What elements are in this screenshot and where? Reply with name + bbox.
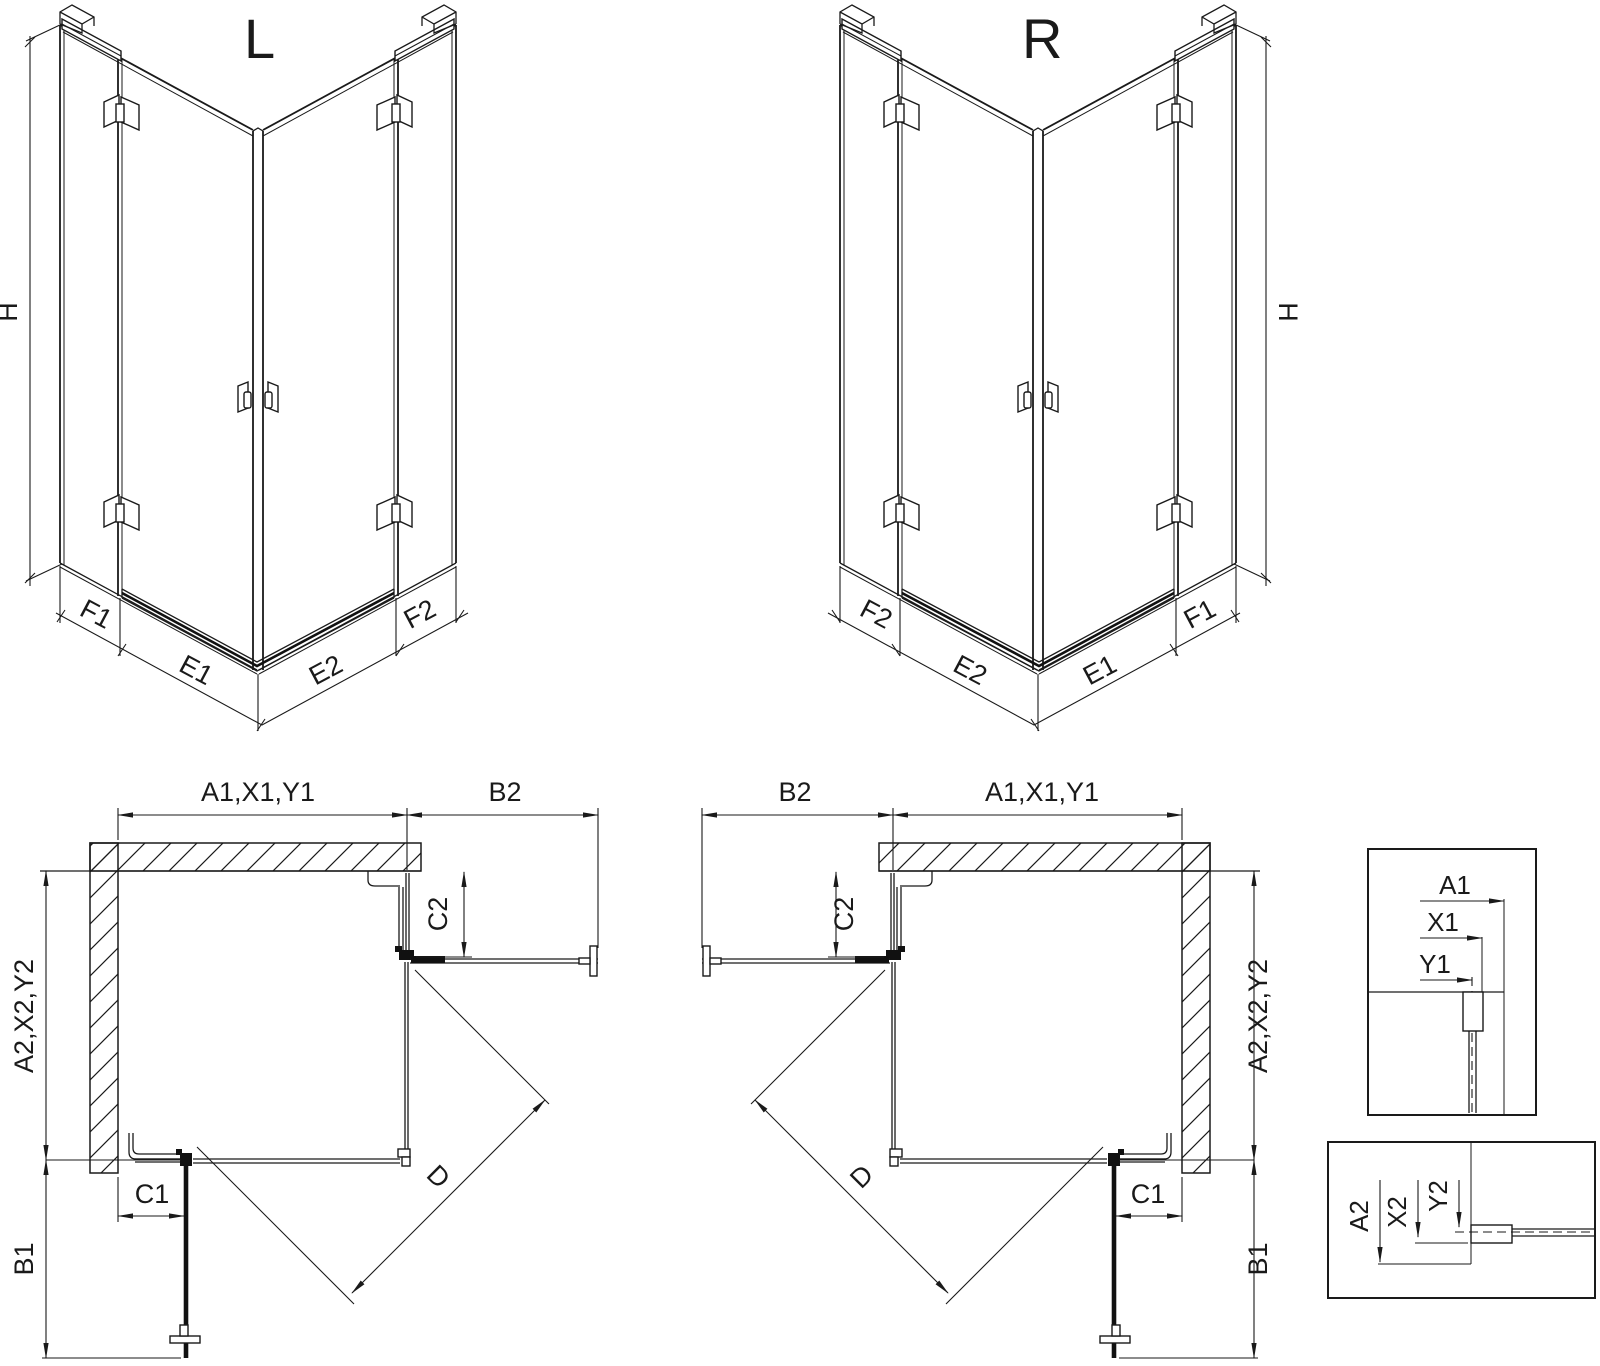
detail-top-ref-lines: [1482, 899, 1504, 1115]
iso-left-f1-label: F1: [75, 593, 117, 634]
plan-right-b2-label: B2: [778, 777, 811, 807]
detail-top-y1-label: Y1: [1419, 949, 1451, 979]
plan-right-top-wall: [879, 843, 1210, 871]
plan-view-left: A1,X1,Y1 B2 C2 A2,X2,Y2 C1 B1 D: [9, 777, 598, 1358]
plan-left-b2-label: B2: [488, 777, 521, 807]
plan-left-linework: [40, 808, 598, 1358]
plan-left-d-label: D: [421, 1159, 456, 1194]
plan-right-linework: [702, 808, 1260, 1358]
plan-left-side-wall: [90, 843, 118, 1173]
iso-right-title: R: [1022, 7, 1062, 70]
plan-right-a1-label: A1,X1,Y1: [985, 777, 1099, 807]
plan-right-b1-label: B1: [1243, 1242, 1273, 1275]
plan-left-a1-label: A1,X1,Y1: [201, 777, 315, 807]
iso-left-e2-label: E2: [304, 649, 347, 691]
iso-right-e2-label: E2: [949, 649, 992, 691]
iso-view-right: R H F2 E2 E1 F1: [828, 5, 1303, 731]
plan-right-c2-label: C2: [829, 897, 859, 932]
plan-view-right: A1,X1,Y1 B2 C2 A2,X2,Y2 C1 B1 D: [702, 777, 1273, 1358]
detail-bottom-a2-label: A2: [1344, 1200, 1374, 1232]
iso-left-height-label: H: [0, 302, 23, 322]
plan-left-c1-label: C1: [135, 1179, 170, 1209]
iso-left-title: L: [244, 7, 275, 70]
detail-top-x1-label: X1: [1427, 907, 1459, 937]
detail-bottom-clamp-profile: [1471, 1225, 1512, 1243]
detail-top-glass: [1469, 1031, 1476, 1113]
plan-right-a2-label: A2,X2,Y2: [1243, 959, 1273, 1073]
iso-right-height-label: H: [1273, 302, 1303, 322]
plan-right-side-wall: [1182, 843, 1210, 1173]
drawing-sheet: L H F1 E1 E2 F2 R H F2 E2 E1 F1 A1,X1,Y1…: [0, 0, 1600, 1366]
detail-bottom-x2-label: X2: [1382, 1196, 1412, 1228]
detail-bottom-y2-label: Y2: [1423, 1180, 1453, 1212]
iso-left-e1-label: E1: [175, 649, 218, 691]
iso-right-e1-label: E1: [1078, 649, 1121, 691]
shower-enclosure-technical-drawing: L H F1 E1 E2 F2 R H F2 E2 E1 F1 A1,X1,Y1…: [0, 0, 1600, 1366]
plan-left-top-wall: [90, 843, 421, 871]
detail-top-a1-label: A1: [1439, 870, 1471, 900]
plan-left-a2-label: A2,X2,Y2: [9, 959, 39, 1073]
iso-right-f2-label: F2: [855, 593, 897, 634]
detail-top-clamp-profile: [1463, 992, 1483, 1031]
plan-left-b1-label: B1: [9, 1242, 39, 1275]
iso-view-left: L H F1 E1 E2 F2: [0, 5, 468, 731]
detail-wall-profile-bottom: Y2 X2 A2: [1328, 1142, 1595, 1298]
plan-right-c1-label: C1: [1131, 1179, 1166, 1209]
iso-left-f2-label: F2: [399, 593, 441, 634]
iso-right-f1-label: F1: [1179, 593, 1221, 634]
plan-left-c2-label: C2: [423, 897, 453, 932]
plan-right-d-label: D: [844, 1159, 879, 1194]
detail-wall-profile-top: A1 X1 Y1: [1368, 849, 1536, 1115]
